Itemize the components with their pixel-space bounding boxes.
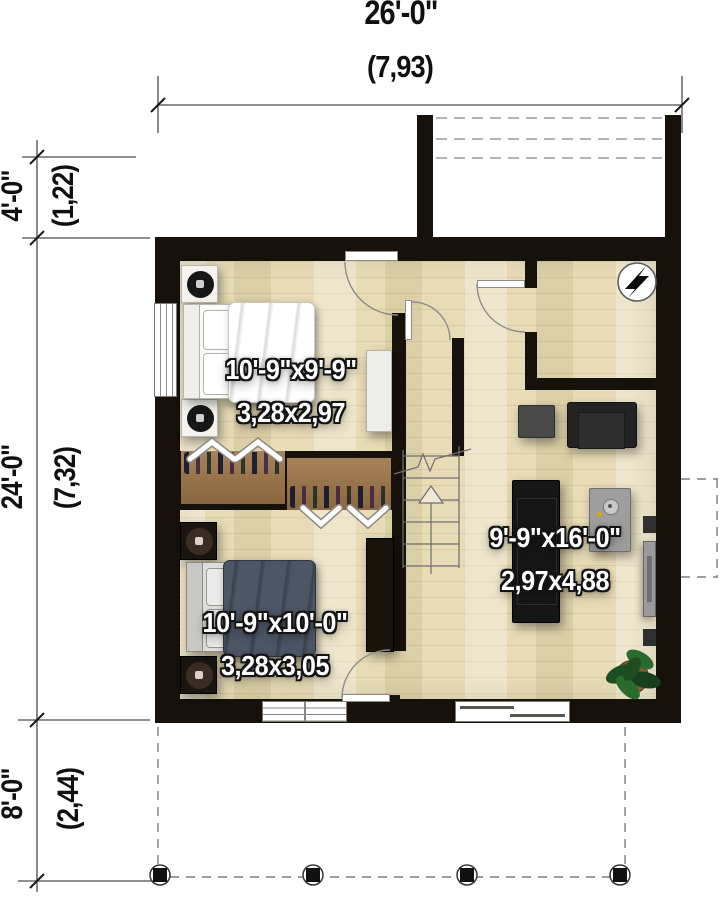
hall-closet-door-arc <box>412 302 450 340</box>
closet-bifold-chevrons <box>190 442 386 524</box>
porch-column <box>303 865 323 885</box>
plan-linework <box>0 0 720 897</box>
porch-columns <box>150 865 630 885</box>
porch-column <box>457 865 477 885</box>
dim-left-1-meters: (1,22) <box>49 136 79 256</box>
stair-up-arrow-icon <box>419 486 443 503</box>
bedroom2-size-imperial: 10'-9"x10'-0" <box>172 606 379 640</box>
porch-column <box>150 865 170 885</box>
bedroom1-size-imperial: 10'-9"x9'-9" <box>188 353 395 387</box>
dim-left-1-feet: 4'-0" <box>0 136 28 256</box>
living-area-size-imperial: 9'-9"x16'-0" <box>452 521 659 555</box>
dimension-lines <box>18 76 682 892</box>
dimension-ticks <box>30 98 689 888</box>
electrical-panel-icon <box>618 263 656 301</box>
dim-left-3-meters: (2,44) <box>54 739 84 859</box>
dim-left-2-meters: (7,32) <box>51 418 81 538</box>
dim-top-meters: (7,93) <box>294 49 505 85</box>
bedroom2-size-metric: 3,28x3,05 <box>172 649 379 683</box>
dim-left-2-feet: 24'-0" <box>0 417 28 537</box>
living-area-size-metric: 2,97x4,88 <box>452 564 659 598</box>
bedroom1-door-arc <box>345 262 398 315</box>
entry-door-arc <box>477 284 525 332</box>
porch-outline-dashed <box>158 727 625 877</box>
vestibule-steps-dashed <box>436 118 662 158</box>
floor-plan: 26'-0" (7,93) 4'-0" (1,22) 24'-0" (7,32)… <box>0 0 720 897</box>
side-deck-dashed <box>681 479 718 577</box>
bedroom1-size-metric: 3,28x2,97 <box>188 396 395 430</box>
porch-column <box>610 865 630 885</box>
dim-top-feet: 26'-0" <box>299 0 503 33</box>
dim-left-3-feet: 8'-0" <box>0 734 28 854</box>
